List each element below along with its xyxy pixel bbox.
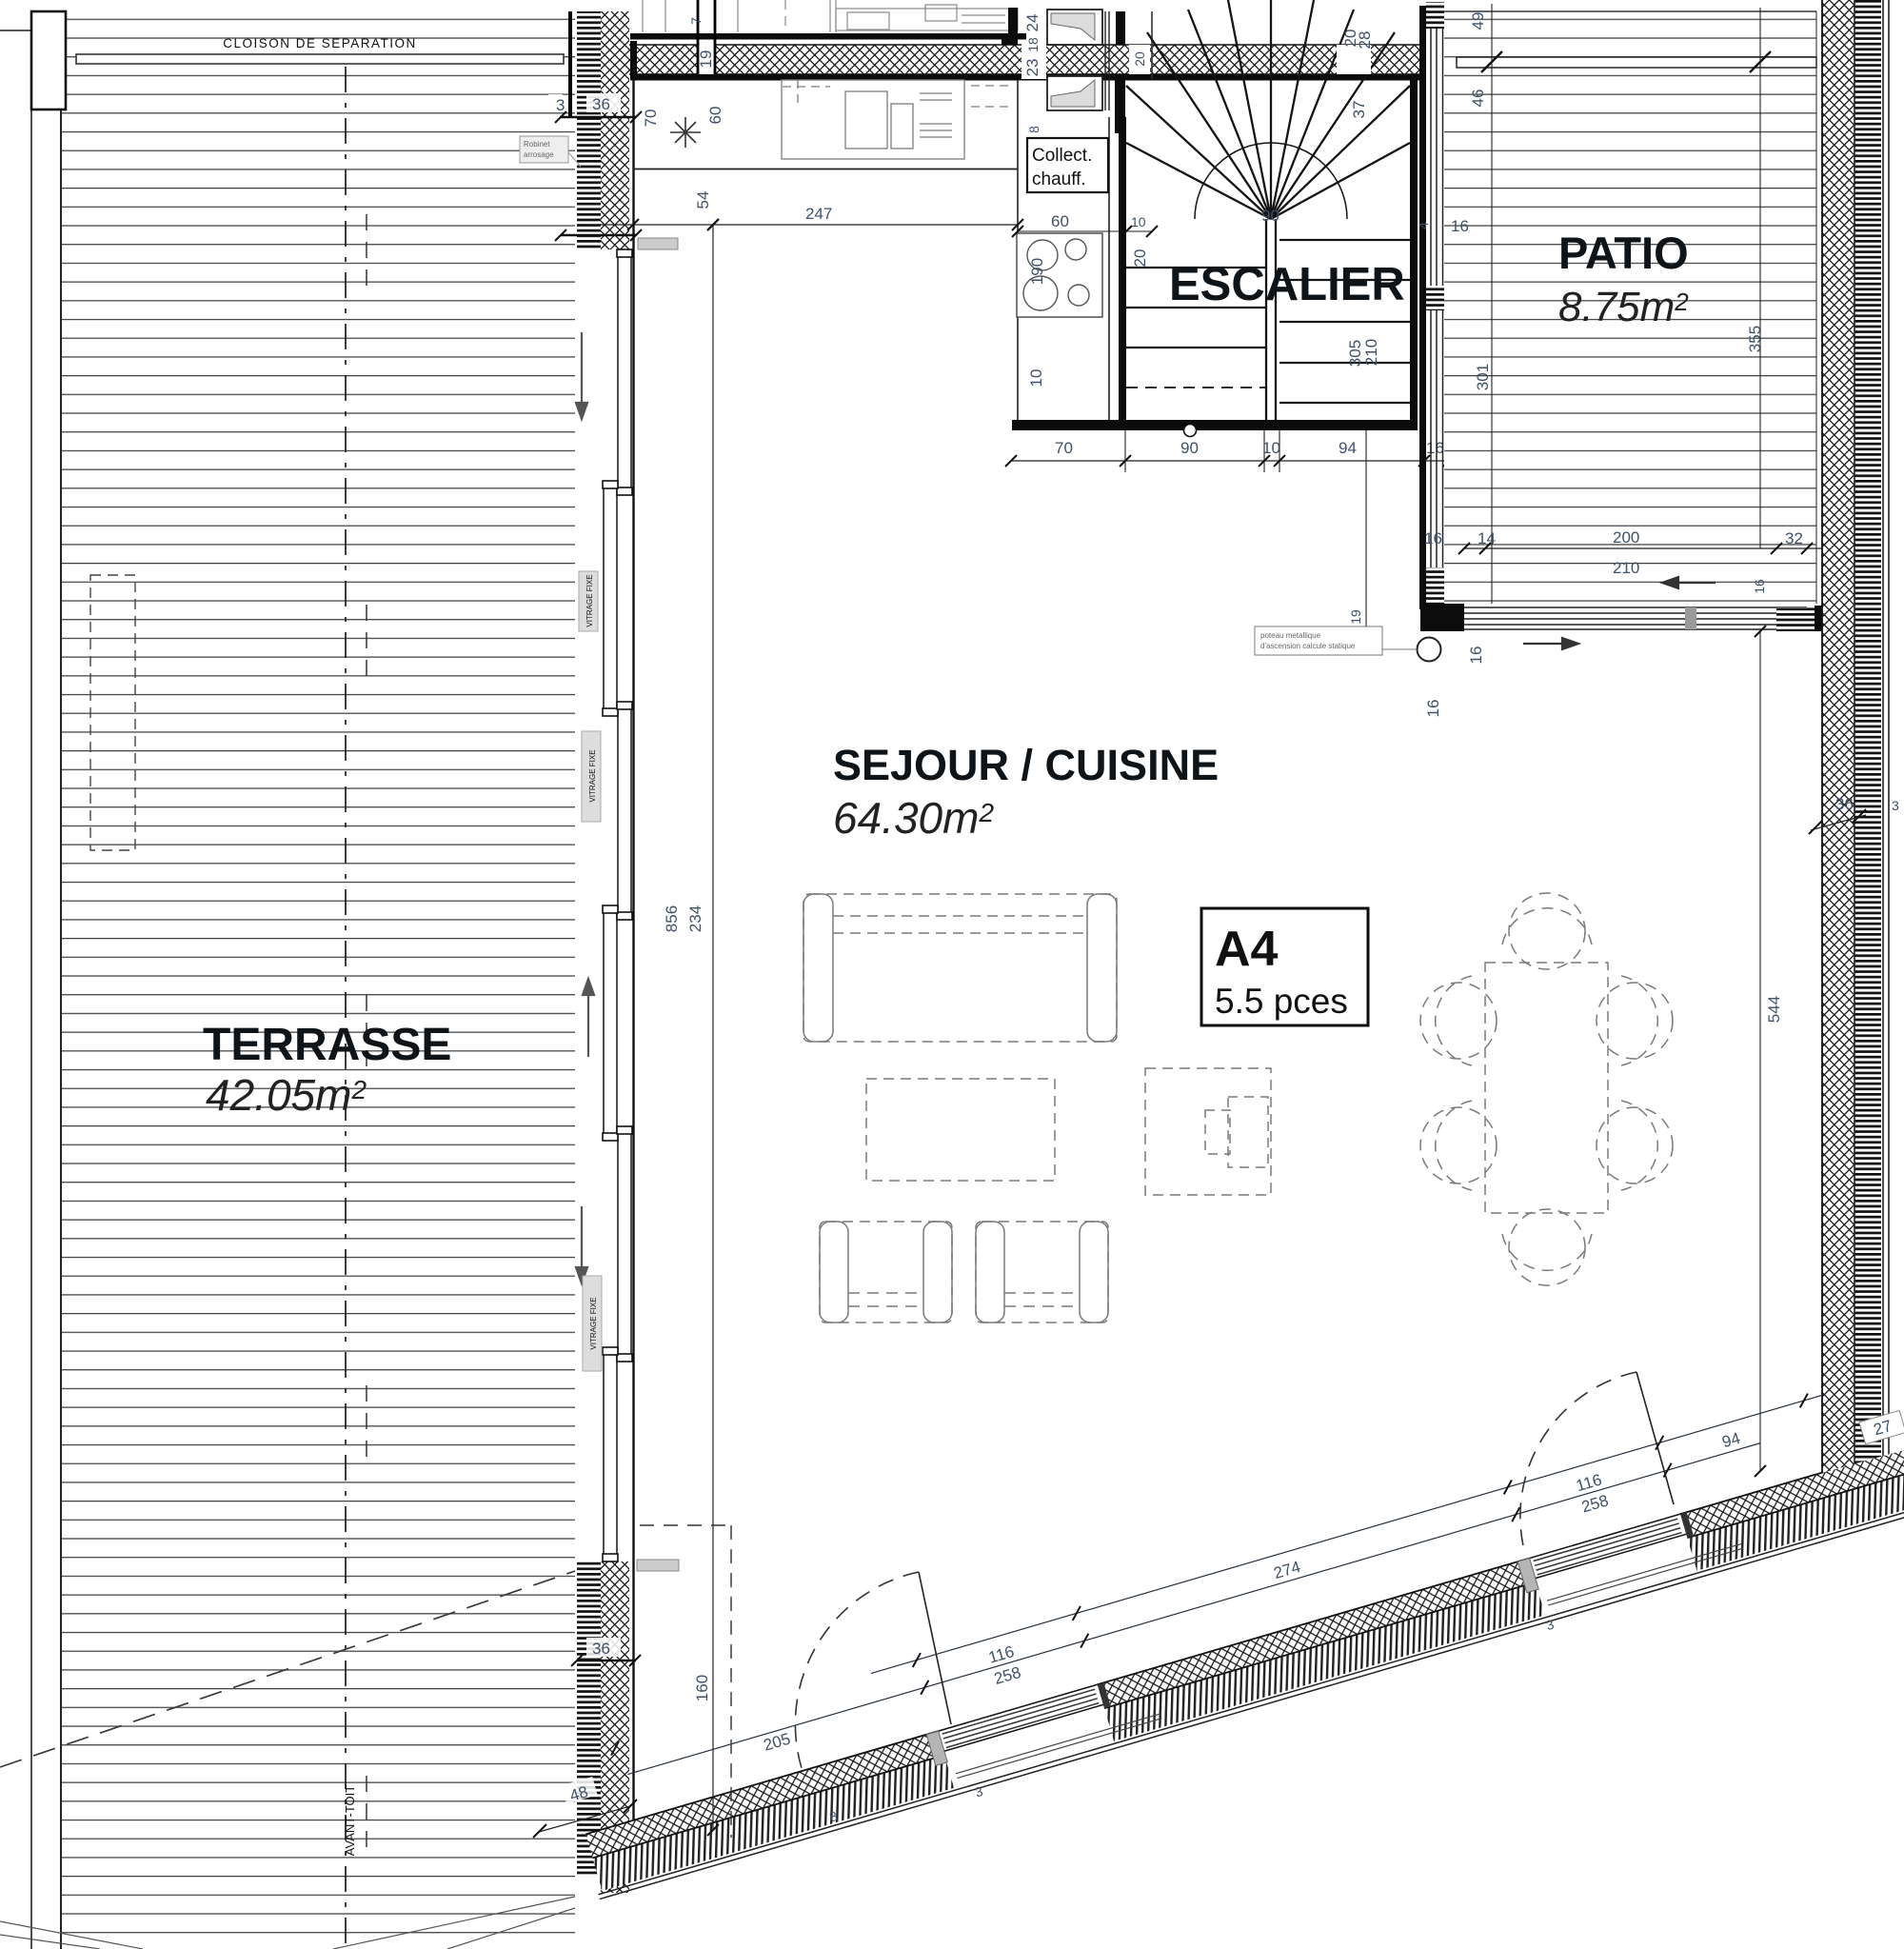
svg-text:301: 301 bbox=[1474, 364, 1492, 390]
svg-text:16: 16 bbox=[1467, 646, 1485, 665]
svg-text:7: 7 bbox=[688, 17, 704, 25]
svg-text:4: 4 bbox=[1416, 222, 1431, 229]
svg-text:8: 8 bbox=[1026, 126, 1041, 133]
svg-text:poteau metallique: poteau metallique bbox=[1260, 631, 1321, 640]
svg-text:32: 32 bbox=[1785, 529, 1803, 547]
svg-text:210: 210 bbox=[1362, 339, 1380, 366]
svg-text:16: 16 bbox=[1752, 579, 1767, 594]
svg-text:70: 70 bbox=[642, 109, 660, 128]
svg-text:SEJOUR / CUISINE: SEJOUR / CUISINE bbox=[833, 741, 1219, 789]
svg-text:20: 20 bbox=[1131, 249, 1149, 268]
svg-text:160: 160 bbox=[693, 1675, 711, 1701]
svg-text:8.75m2: 8.75m2 bbox=[1558, 284, 1689, 330]
svg-text:16: 16 bbox=[1424, 529, 1442, 547]
svg-text:90: 90 bbox=[1180, 439, 1199, 457]
svg-text:355: 355 bbox=[1746, 326, 1764, 352]
svg-text:37: 37 bbox=[1350, 101, 1368, 119]
svg-text:856: 856 bbox=[663, 905, 681, 932]
svg-text:5.5 pces: 5.5 pces bbox=[1215, 982, 1348, 1021]
svg-text:3: 3 bbox=[1892, 798, 1899, 813]
svg-text:90: 90 bbox=[1261, 207, 1279, 225]
svg-text:190: 190 bbox=[1028, 258, 1046, 285]
svg-text:A4: A4 bbox=[1215, 922, 1279, 977]
svg-text:VITRAGE FIXE: VITRAGE FIXE bbox=[588, 749, 597, 802]
svg-text:CLOISON DE SEPARATION: CLOISON DE SEPARATION bbox=[223, 36, 417, 50]
svg-text:Collect.: Collect. bbox=[1032, 146, 1092, 166]
svg-text:36: 36 bbox=[592, 95, 610, 113]
svg-text:d'ascension calcule statique: d'ascension calcule statique bbox=[1260, 642, 1356, 650]
svg-text:28: 28 bbox=[1356, 31, 1374, 50]
svg-text:16: 16 bbox=[1451, 217, 1469, 235]
svg-text:AVANT-TOIT: AVANT-TOIT bbox=[343, 1785, 357, 1856]
svg-text:544: 544 bbox=[1765, 996, 1783, 1023]
svg-text:247: 247 bbox=[805, 205, 832, 223]
svg-text:Robinet: Robinet bbox=[524, 140, 550, 149]
svg-text:10: 10 bbox=[1262, 439, 1280, 457]
svg-text:VITRAGE FIXE: VITRAGE FIXE bbox=[585, 574, 594, 626]
svg-text:234: 234 bbox=[686, 905, 704, 932]
svg-text:49: 49 bbox=[1469, 12, 1487, 30]
svg-text:20: 20 bbox=[1132, 51, 1147, 67]
svg-text:36: 36 bbox=[1835, 795, 1854, 813]
svg-text:arrosage: arrosage bbox=[524, 150, 554, 159]
svg-text:10: 10 bbox=[1027, 369, 1045, 388]
svg-text:70: 70 bbox=[1055, 439, 1073, 457]
svg-text:16: 16 bbox=[1426, 439, 1444, 457]
svg-text:VITRAGE FIXE: VITRAGE FIXE bbox=[589, 1297, 598, 1349]
svg-text:46: 46 bbox=[1469, 89, 1487, 108]
svg-text:PATIO: PATIO bbox=[1558, 228, 1689, 278]
svg-text:200: 200 bbox=[1613, 528, 1639, 547]
svg-text:24: 24 bbox=[1023, 14, 1041, 32]
svg-text:36: 36 bbox=[592, 1640, 610, 1658]
svg-text:TERRASSE: TERRASSE bbox=[203, 1020, 451, 1070]
svg-text:54: 54 bbox=[694, 191, 712, 209]
svg-text:19: 19 bbox=[697, 50, 715, 69]
svg-text:14: 14 bbox=[1478, 529, 1496, 547]
svg-text:18: 18 bbox=[1025, 37, 1041, 52]
svg-text:3: 3 bbox=[556, 96, 565, 114]
svg-text:60: 60 bbox=[706, 107, 724, 125]
svg-text:16: 16 bbox=[1424, 700, 1442, 718]
svg-text:23: 23 bbox=[1023, 59, 1041, 77]
svg-text:42.05m2: 42.05m2 bbox=[206, 1070, 367, 1120]
svg-text:chauff.: chauff. bbox=[1032, 169, 1086, 189]
svg-text:19: 19 bbox=[1348, 609, 1363, 625]
svg-text:60: 60 bbox=[1051, 212, 1069, 230]
svg-text:210: 210 bbox=[1613, 559, 1639, 577]
svg-text:64.30m2: 64.30m2 bbox=[833, 793, 994, 843]
svg-text:94: 94 bbox=[1339, 439, 1357, 457]
svg-text:10: 10 bbox=[1131, 214, 1146, 229]
svg-text:ESCALIER: ESCALIER bbox=[1169, 259, 1405, 310]
